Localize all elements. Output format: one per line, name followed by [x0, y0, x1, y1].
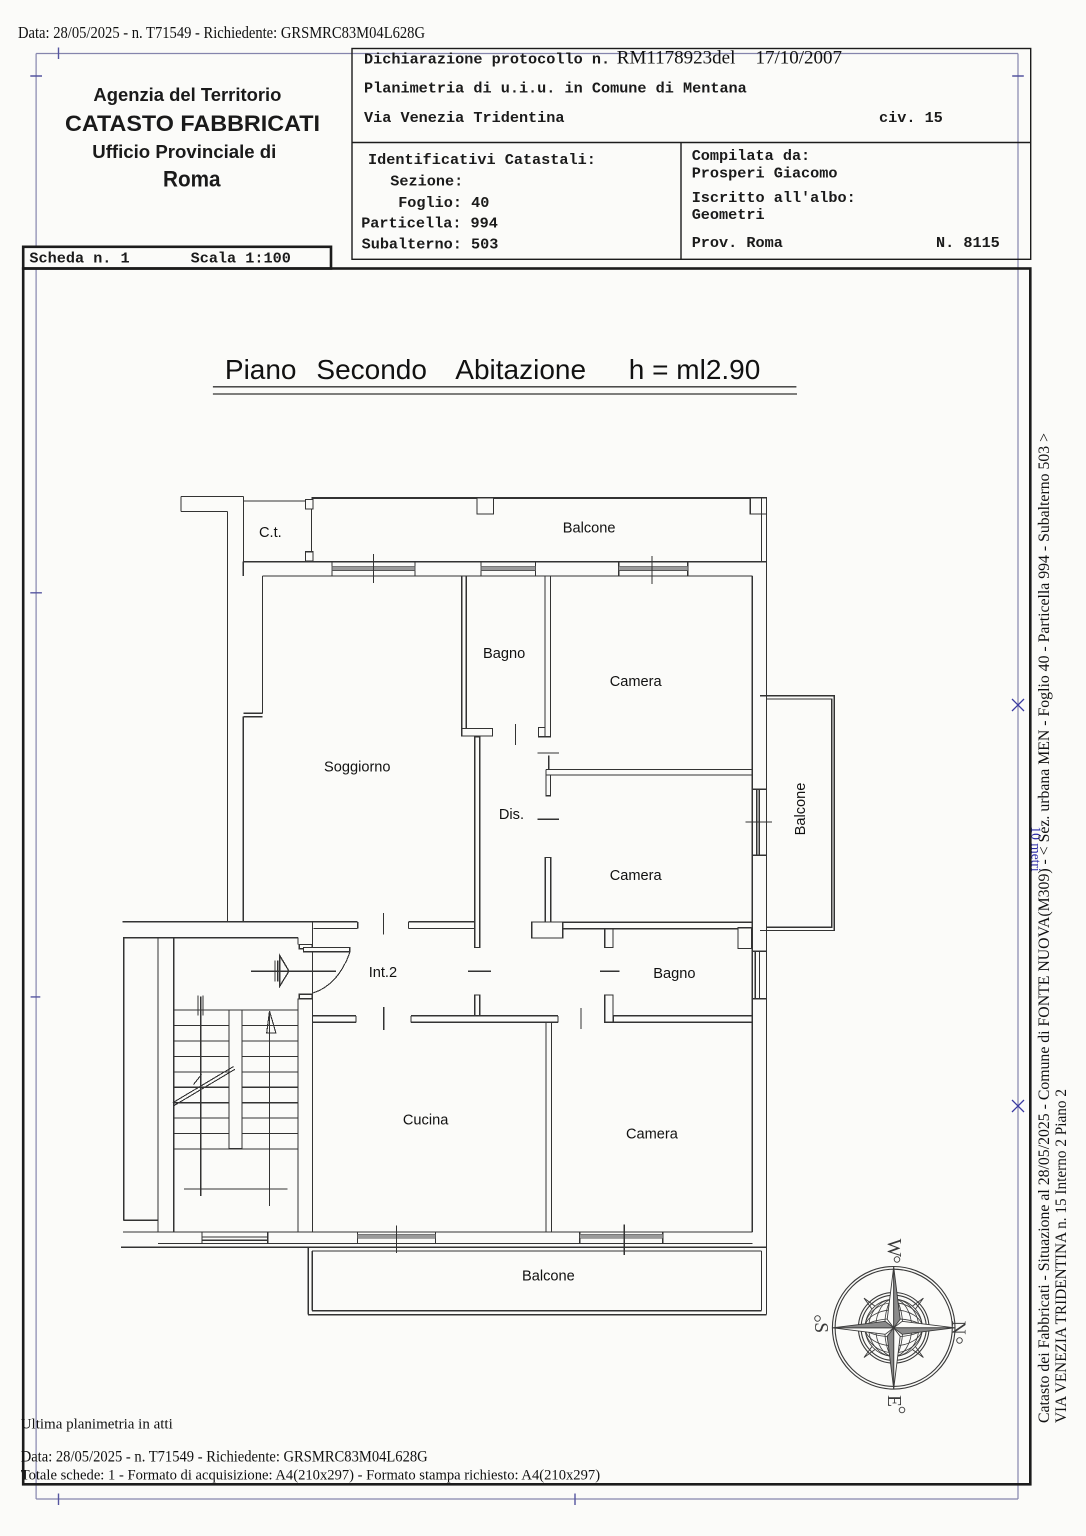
svg-text:Catasto dei Fabbricati - Situ: Catasto dei Fabbricati - Situazione al 2…	[1036, 433, 1053, 1423]
svg-text:Balcone: Balcone	[563, 521, 616, 537]
svg-text:h = ml2.90: h = ml2.90	[629, 354, 761, 385]
svg-text:Iscritto all'albo:: Iscritto all'albo:	[692, 189, 856, 207]
svg-text:Geometri: Geometri	[692, 206, 765, 224]
svg-text:Compilata da:: Compilata da:	[692, 147, 810, 165]
svg-text:RM1178923del: RM1178923del	[617, 48, 736, 69]
svg-text:Cucina: Cucina	[403, 1113, 449, 1129]
svg-text:VIA VENEZIA TRIDENTINA n. 15: VIA VENEZIA TRIDENTINA n. 15 Interno 2 P…	[1053, 1089, 1070, 1423]
svg-text:Sezione:: Sezione:	[390, 173, 463, 191]
svg-text:Prov. Roma: Prov. Roma	[692, 234, 783, 252]
svg-text:Bagno: Bagno	[653, 966, 695, 982]
svg-text:Ufficio Provinciale di: Ufficio Provinciale di	[92, 141, 276, 162]
svg-text:Subalterno: 503: Subalterno: 503	[362, 236, 499, 254]
svg-text:Piano: Piano	[225, 354, 297, 385]
svg-text:Data: 28/05/2025 - n. T71549 -: Data: 28/05/2025 - n. T71549 - Richieden…	[21, 1448, 428, 1466]
svg-text:Scheda n. 1: Scheda n. 1	[29, 250, 129, 268]
svg-text:Roma: Roma	[163, 167, 221, 192]
svg-text:Balcone: Balcone	[522, 1269, 575, 1285]
svg-text:N: N	[948, 1321, 969, 1335]
svg-text:Totale schede: 1 - Formato di: Totale schede: 1 - Formato di acquisizio…	[21, 1468, 601, 1484]
svg-text:Camera: Camera	[610, 868, 663, 884]
svg-text:17/10/2007: 17/10/2007	[756, 48, 843, 69]
svg-text:Camera: Camera	[626, 1127, 679, 1143]
svg-text:Agenzia del Territorio: Agenzia del Territorio	[93, 84, 281, 105]
svg-text:Dis.: Dis.	[499, 807, 524, 823]
svg-text:Secondo: Secondo	[316, 354, 427, 385]
svg-text:S: S	[810, 1322, 831, 1333]
svg-text:Bagno: Bagno	[483, 646, 525, 662]
svg-text:civ. 15: civ. 15	[879, 109, 943, 127]
svg-text:Scala 1:100: Scala 1:100	[191, 250, 291, 268]
svg-text:Foglio: 40: Foglio: 40	[398, 194, 489, 212]
svg-text:W: W	[883, 1239, 904, 1258]
svg-text:Abitazione: Abitazione	[455, 354, 586, 385]
svg-text:Prosperi Giacomo: Prosperi Giacomo	[692, 164, 838, 182]
svg-text:C.t.: C.t.	[259, 525, 282, 541]
svg-text:E: E	[883, 1395, 904, 1407]
svg-text:N. 8115: N. 8115	[936, 234, 1000, 252]
svg-text:Data: 28/05/2025 - n. T71549 -: Data: 28/05/2025 - n. T71549 - Richieden…	[18, 23, 425, 42]
svg-text:Balcone: Balcone	[793, 783, 809, 836]
svg-text:Particella: 994: Particella: 994	[361, 215, 498, 233]
svg-text:CATASTO FABBRICATI: CATASTO FABBRICATI	[65, 111, 320, 136]
svg-text:Planimetria di u.i.u. in Comun: Planimetria di u.i.u. in Comune di Menta…	[364, 80, 747, 98]
svg-text:Ultima planimetria in atti: Ultima planimetria in atti	[21, 1416, 173, 1432]
svg-text:Int.2: Int.2	[369, 965, 397, 981]
svg-text:Dichiarazione protocollo n.: Dichiarazione protocollo n.	[364, 51, 610, 69]
svg-text:Via Venezia Tridentina: Via Venezia Tridentina	[364, 109, 565, 127]
svg-text:Identificativi Catastali:: Identificativi Catastali:	[368, 151, 596, 169]
svg-text:Camera: Camera	[610, 674, 663, 690]
svg-text:Soggiorno: Soggiorno	[324, 760, 391, 776]
